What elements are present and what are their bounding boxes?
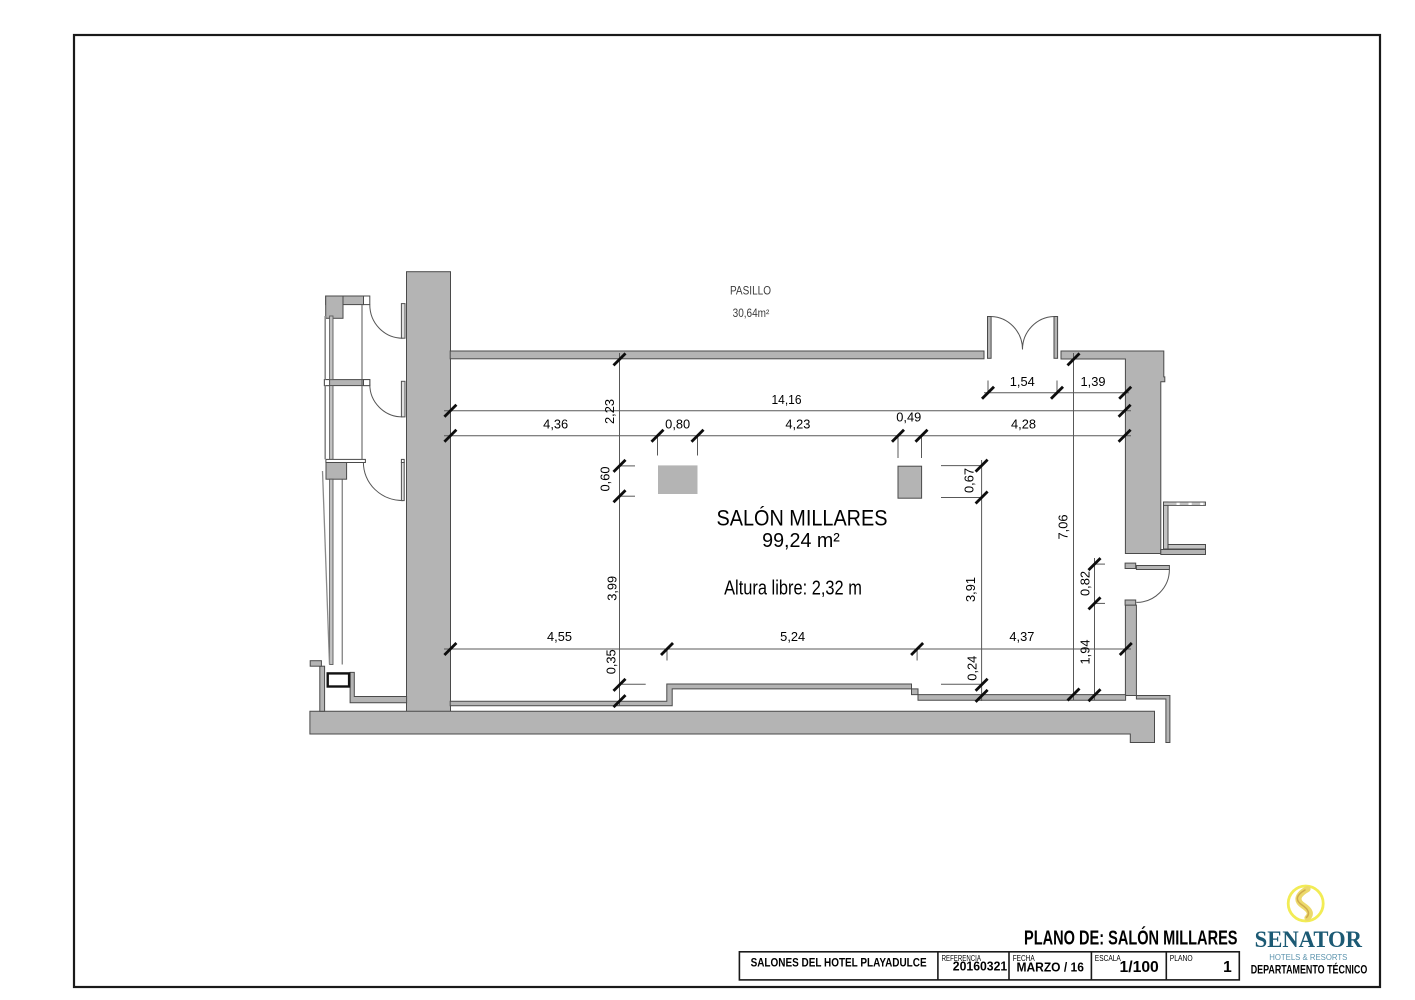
svg-text:7,06: 7,06: [1057, 514, 1071, 539]
svg-text:1: 1: [1223, 959, 1232, 976]
svg-text:1,94: 1,94: [1079, 639, 1093, 664]
svg-text:14,16: 14,16: [772, 393, 802, 407]
svg-text:99,24 m²: 99,24 m²: [762, 529, 840, 552]
svg-text:3,91: 3,91: [964, 577, 978, 602]
svg-text:30,64m²: 30,64m²: [733, 308, 770, 320]
svg-text:2,23: 2,23: [603, 399, 617, 424]
svg-text:5,24: 5,24: [780, 630, 805, 644]
svg-text:3,99: 3,99: [606, 576, 620, 601]
svg-text:4,37: 4,37: [1009, 630, 1034, 644]
svg-text:1,54: 1,54: [1010, 375, 1035, 389]
svg-text:4,28: 4,28: [1011, 417, 1036, 431]
svg-text:0,80: 0,80: [665, 417, 690, 431]
svg-text:0,49: 0,49: [896, 411, 921, 425]
svg-text:FECHA: FECHA: [1013, 953, 1035, 963]
svg-text:0,82: 0,82: [1079, 571, 1093, 596]
svg-text:SALÓN MILLARES: SALÓN MILLARES: [717, 505, 888, 530]
svg-text:SENATOR: SENATOR: [1255, 927, 1363, 952]
svg-text:PLANO DE: SALÓN MILLARES: PLANO DE: SALÓN MILLARES: [1024, 925, 1238, 949]
svg-text:0,35: 0,35: [605, 649, 619, 674]
svg-text:SALONES DEL HOTEL PLAYADULCE: SALONES DEL HOTEL PLAYADULCE: [751, 958, 927, 970]
svg-text:4,23: 4,23: [785, 417, 810, 431]
svg-text:1/100: 1/100: [1120, 959, 1159, 976]
svg-text:HOTELS & RESORTS: HOTELS & RESORTS: [1269, 953, 1347, 962]
svg-text:REFERENCIA: REFERENCIA: [942, 953, 982, 963]
svg-text:DEPARTAMENTO TÉCNICO: DEPARTAMENTO TÉCNICO: [1251, 961, 1368, 976]
svg-text:0,60: 0,60: [599, 466, 613, 491]
svg-text:4,36: 4,36: [543, 417, 568, 431]
svg-text:1,39: 1,39: [1081, 375, 1106, 389]
svg-text:ESCALA: ESCALA: [1095, 953, 1121, 963]
svg-text:PASILLO: PASILLO: [730, 286, 771, 298]
svg-text:0,24: 0,24: [966, 656, 980, 681]
svg-text:Altura libre: 2,32 m: Altura libre: 2,32 m: [724, 577, 862, 600]
svg-text:0,67: 0,67: [963, 468, 977, 493]
svg-text:PLANO: PLANO: [1170, 953, 1193, 963]
svg-text:4,55: 4,55: [547, 630, 572, 644]
